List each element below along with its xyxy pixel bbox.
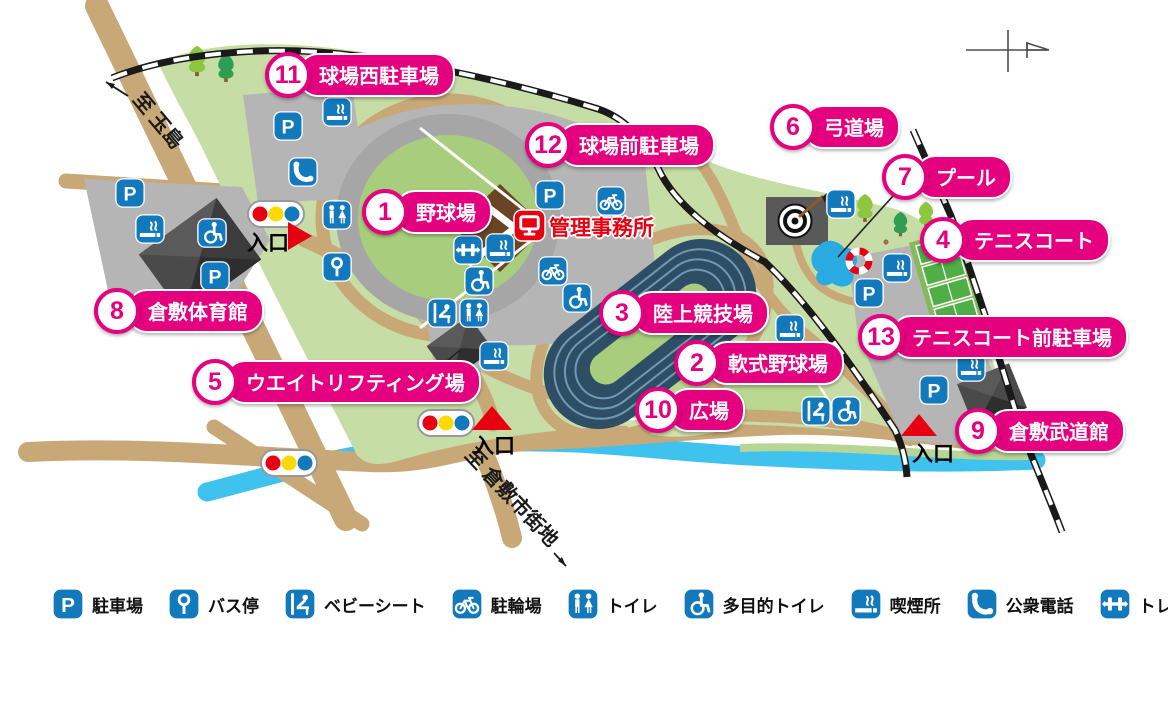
bicycle-parking-icon: [539, 257, 567, 285]
parking-icon: [116, 179, 144, 207]
facility-number: 10: [635, 387, 681, 433]
facility-number: 6: [770, 104, 816, 150]
legend-item-bicycle-parking: 駐輪場: [451, 588, 542, 620]
legend-item-bus-stop: バス停: [168, 588, 259, 620]
facility-name: 球場前駐車場: [558, 123, 715, 167]
entrance-label-east: 入口: [912, 438, 954, 468]
facility-name: テニスコート前駐車場: [891, 315, 1128, 359]
accessible-toilet-icon: [198, 219, 226, 247]
facility-label-4: 4 テニスコート: [920, 217, 1110, 263]
baby-seat-icon: [802, 397, 830, 425]
bicycle-parking-icon: [597, 187, 625, 215]
smoking-area-icon: [480, 342, 508, 370]
facility-label-10: 10 広場: [635, 387, 745, 433]
parking-icon: [52, 588, 84, 620]
public-phone-icon: [966, 588, 998, 620]
facility-label-8: 8 倉敷体育館: [94, 288, 264, 334]
facility-number: 1: [362, 189, 408, 235]
facility-number: 3: [599, 290, 645, 336]
facility-label-6: 6 弓道場: [770, 104, 900, 150]
management-office-label: 管理事務所: [549, 212, 654, 242]
bus-stop-icon: [168, 588, 200, 620]
legend-item-public-phone: 公衆電話: [966, 588, 1074, 620]
facility-label-7: 7 プール: [882, 154, 1012, 200]
facility-name: テニスコート: [953, 218, 1110, 262]
entrance-label-west: 入口: [247, 227, 289, 257]
park-map: P: [0, 0, 1168, 705]
toilet-icon: [323, 201, 351, 229]
facility-name: 倉敷体育館: [127, 289, 264, 333]
smoking-area-icon: [776, 315, 804, 343]
facility-number: 12: [525, 122, 571, 168]
training-room-icon: [454, 236, 482, 264]
facility-label-13: 13 テニスコート前駐車場: [858, 314, 1128, 360]
facility-name: 倉敷武道館: [988, 409, 1125, 453]
facility-number: 8: [94, 288, 140, 334]
facility-name: 陸上競技場: [632, 291, 769, 335]
legend-item-smoking-area: 喫煙所: [850, 588, 941, 620]
toilet-icon: [567, 588, 599, 620]
legend-label: 駐輪場: [491, 592, 542, 617]
facility-name: 軟式野球場: [707, 341, 844, 385]
facility-name: 弓道場: [803, 105, 900, 149]
accessible-toilet-icon: [683, 588, 715, 620]
facility-label-9: 9 倉敷武道館: [955, 408, 1125, 454]
smoking-area-icon: [486, 234, 514, 262]
baby-seat-icon: [428, 299, 456, 327]
facility-name: 野球場: [395, 190, 492, 234]
facility-label-3: 3 陸上競技場: [599, 290, 769, 336]
facility-label-5: 5 ウエイトリフティング場: [192, 359, 481, 405]
smoking-area-icon: [850, 588, 882, 620]
baby-seat-icon: [284, 588, 316, 620]
smoking-area-icon: [323, 98, 351, 126]
smoking-area-icon: [827, 190, 855, 218]
monitor-icon: [514, 210, 545, 241]
facility-number: 4: [920, 217, 966, 263]
bus-stop-icon: [323, 253, 351, 281]
traffic-light-icon: [248, 201, 304, 227]
traffic-light-icon: [418, 410, 474, 436]
legend-label: バス停: [208, 592, 259, 617]
accessible-toilet-icon: [832, 397, 860, 425]
legend-label: ベビーシート: [324, 592, 426, 617]
smoking-area-icon: [136, 215, 164, 243]
legend: 駐車場 バス停 ベビーシート 駐輪場 トイレ 多目的トイレ 喫煙所 公衆電話 ト…: [52, 588, 1168, 620]
facility-label-1: 1 野球場: [362, 189, 492, 235]
entrance-label-south: 入口: [473, 430, 515, 460]
toilet-icon: [460, 299, 488, 327]
accessible-toilet-icon: [563, 284, 591, 312]
traffic-light-icon: [261, 450, 317, 476]
facility-number: 2: [674, 340, 720, 386]
facility-number: 13: [858, 314, 904, 360]
parking-icon: [855, 279, 883, 307]
legend-item-toilet: トイレ: [567, 588, 658, 620]
legend-label: 駐車場: [92, 592, 143, 617]
training-room-icon: [1099, 588, 1131, 620]
accessible-toilet-icon: [465, 267, 493, 295]
parking-icon: [274, 112, 302, 140]
archery-target-icon: [766, 193, 828, 245]
facility-label-11: 11 球場西駐車場: [265, 52, 455, 98]
north-arrow-icon: [966, 30, 1049, 72]
parking-icon: [536, 181, 564, 209]
legend-label: 多目的トイレ: [723, 592, 825, 617]
legend-item-accessible-toilet: 多目的トイレ: [683, 588, 825, 620]
facility-name: 球場西駐車場: [298, 53, 455, 97]
legend-item-parking: 駐車場: [52, 588, 143, 620]
facility-label-2: 2 軟式野球場: [674, 340, 844, 386]
facility-label-12: 12 球場前駐車場: [525, 122, 715, 168]
legend-label: 公衆電話: [1006, 592, 1074, 617]
facility-name: プール: [915, 155, 1012, 199]
parking-icon: [920, 376, 948, 404]
facility-number: 5: [192, 359, 238, 405]
facility-name: ウエイトリフティング場: [225, 360, 481, 404]
legend-item-baby-seat: ベビーシート: [284, 588, 426, 620]
facility-number: 11: [265, 52, 311, 98]
legend-label: トイレ: [607, 592, 658, 617]
bicycle-parking-icon: [451, 588, 483, 620]
legend-item-training-room: トレーニング室: [1099, 588, 1168, 620]
public-phone-icon: [289, 158, 317, 186]
facility-number: 7: [882, 154, 928, 200]
legend-label: 喫煙所: [890, 592, 941, 617]
parking-icon: [201, 262, 229, 290]
legend-label: トレーニング室: [1139, 592, 1168, 617]
smoking-area-icon: [883, 254, 911, 282]
facility-number: 9: [955, 408, 1001, 454]
